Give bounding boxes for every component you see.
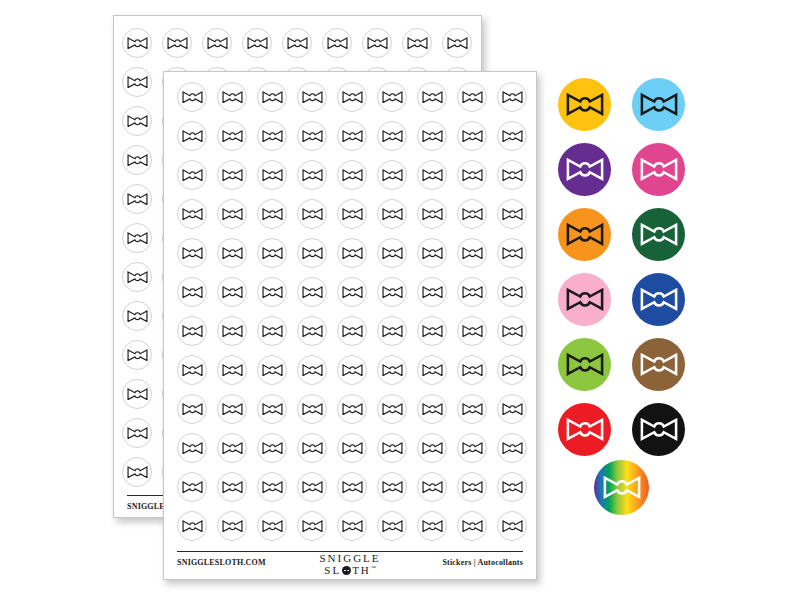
sticker-circle [377,199,407,229]
sticker-circle [497,121,527,151]
sticker-circle [457,511,487,541]
bow-tie-icon [566,353,604,376]
sticker-circle [377,238,407,268]
bow-tie-icon [302,208,323,221]
sticker-circle [122,301,152,331]
sticker-circle [377,160,407,190]
bow-tie-icon [462,169,483,182]
sticker-circle [122,106,152,136]
bow-tie-icon [502,130,523,143]
bow-tie-icon [640,158,678,181]
bow-tie-icon [127,115,148,128]
sticker-circle [217,238,247,268]
bow-tie-icon [422,169,443,182]
bow-tie-icon [462,130,483,143]
sticker-circle [297,82,327,112]
sticker-circle [362,28,392,58]
sticker-circle [497,394,527,424]
bow-tie-icon [222,442,243,455]
bow-tie-icon [640,353,678,376]
bow-tie-icon [342,442,363,455]
bow-tie-icon [462,91,483,104]
sticker-circle [457,121,487,151]
sticker-circle [217,394,247,424]
bow-tie-icon [422,520,443,533]
sticker-circle [217,511,247,541]
sticker-circle [417,472,447,502]
sticker-circle [322,28,352,58]
sticker-circle [217,433,247,463]
sloth-face-icon [342,566,351,575]
bow-tie-icon [382,520,403,533]
bow-tie-icon [422,91,443,104]
bow-tie-icon [462,247,483,260]
sticker-circle [122,67,152,97]
sticker-circle [257,316,287,346]
bow-tie-icon [327,37,348,50]
sticker-circle [257,238,287,268]
sticker-circle [177,433,207,463]
bow-tie-icon [382,325,403,338]
sticker-circle [402,28,432,58]
bow-tie-icon [302,442,323,455]
sticker-grid-front [177,82,527,541]
sticker-circle [122,184,152,214]
sticker-circle [257,277,287,307]
sticker-circle [122,418,152,448]
sticker-circle [122,457,152,487]
bow-tie-icon [342,364,363,377]
sticker-circle [177,82,207,112]
sticker-circle [377,394,407,424]
sticker-circle [177,238,207,268]
sticker-circle [417,433,447,463]
sticker-circle [377,316,407,346]
bow-tie-icon [342,403,363,416]
product-image: SNIGGLESLOTH.COM SNIGGLE SLTH™ Stickers … [0,0,800,600]
sticker-circle [177,355,207,385]
bow-tie-icon [640,223,678,246]
sticker-circle [257,121,287,151]
sticker-sheet-front: SNIGGLESLOTH.COM SNIGGLE SLTH™ Stickers … [163,71,537,580]
sticker-circle [417,394,447,424]
bow-tie-icon [382,169,403,182]
sticker-circle [217,121,247,151]
sticker-circle [377,121,407,151]
bow-tie-icon [222,247,243,260]
sticker-circle [282,28,312,58]
bow-tie-icon [182,286,203,299]
bow-tie-icon [342,520,363,533]
sticker-circle [337,82,367,112]
bow-tie-icon [262,169,283,182]
color-swatch-grid [558,78,685,456]
bow-tie-icon [302,325,323,338]
bow-tie-icon [262,286,283,299]
bow-tie-icon [342,130,363,143]
color-swatch-yellow [558,78,611,131]
sticker-circle [122,340,152,370]
bow-tie-icon [342,325,363,338]
bow-tie-icon [462,481,483,494]
bow-tie-icon [502,481,523,494]
sticker-circle [497,160,527,190]
bow-tie-icon [502,403,523,416]
sticker-circle [497,511,527,541]
bow-tie-icon [182,481,203,494]
bow-tie-icon [462,286,483,299]
bow-tie-icon [502,286,523,299]
sticker-circle [217,277,247,307]
color-swatch-royal-blue [632,273,685,326]
bow-tie-icon [302,481,323,494]
sticker-circle [177,316,207,346]
sticker-circle [297,160,327,190]
bow-tie-icon [182,208,203,221]
bow-tie-icon [462,403,483,416]
bow-tie-icon [640,418,678,441]
bow-tie-icon [262,247,283,260]
bow-tie-icon [447,37,468,50]
bow-tie-icon [367,37,388,50]
bow-tie-icon [382,403,403,416]
bow-tie-icon [262,364,283,377]
bow-tie-icon [462,325,483,338]
bow-tie-icon [502,325,523,338]
bow-tie-icon [302,286,323,299]
bow-tie-icon [422,481,443,494]
sticker-circle [177,511,207,541]
bow-tie-icon [222,91,243,104]
bow-tie-icon [127,466,148,479]
sticker-circle [217,355,247,385]
sticker-circle [497,238,527,268]
bow-tie-icon [222,520,243,533]
bow-tie-icon [182,169,203,182]
bow-tie-icon [422,130,443,143]
bow-tie-icon [462,208,483,221]
bow-tie-icon [222,130,243,143]
bow-tie-icon [566,158,604,181]
sticker-circle [457,472,487,502]
bow-tie-icon [422,364,443,377]
bow-tie-icon [302,169,323,182]
bow-tie-icon [127,37,148,50]
color-swatch-orange [558,208,611,261]
bow-tie-icon [127,388,148,401]
bow-tie-icon [566,418,604,441]
sticker-circle [497,433,527,463]
bow-tie-icon [182,130,203,143]
sticker-circle [457,82,487,112]
bow-tie-icon [127,427,148,440]
color-swatch-rainbow [594,460,649,515]
bow-tie-icon [422,247,443,260]
sticker-circle [297,316,327,346]
bow-tie-icon [422,325,443,338]
sticker-circle [457,160,487,190]
bow-tie-icon [207,37,228,50]
sticker-circle [257,511,287,541]
sticker-circle [297,238,327,268]
bow-tie-icon [462,442,483,455]
bow-tie-icon [182,403,203,416]
color-swatch-black [632,403,685,456]
sticker-circle [122,145,152,175]
sticker-circle [337,277,367,307]
sticker-circle [217,82,247,112]
bow-tie-icon [127,154,148,167]
sticker-circle [337,433,367,463]
sticker-circle [377,355,407,385]
bow-tie-icon [127,76,148,89]
bow-tie-icon [222,325,243,338]
sticker-circle [257,199,287,229]
bow-tie-icon [302,364,323,377]
bow-tie-icon [382,442,403,455]
bow-tie-icon [262,403,283,416]
sticker-circle [257,394,287,424]
sticker-circle [162,28,192,58]
bow-tie-icon [422,208,443,221]
sticker-circle [442,28,472,58]
sticker-circle [337,199,367,229]
bow-tie-icon [222,403,243,416]
sticker-circle [297,433,327,463]
sticker-circle [457,199,487,229]
sticker-circle [297,277,327,307]
bow-tie-icon [502,91,523,104]
bow-tie-icon [302,247,323,260]
bow-tie-icon [382,247,403,260]
bow-tie-icon [222,286,243,299]
color-swatch-red [558,403,611,456]
bow-tie-icon [262,130,283,143]
sticker-circle [122,262,152,292]
sticker-circle [497,472,527,502]
bow-tie-icon [302,520,323,533]
sticker-circle [177,472,207,502]
sticker-circle [217,199,247,229]
bow-tie-icon [127,193,148,206]
bow-tie-icon [127,349,148,362]
sticker-circle [242,28,272,58]
sticker-circle [337,238,367,268]
bow-tie-icon [502,442,523,455]
product-type-text: Stickers | Autocollants [442,558,523,567]
bow-tie-icon [342,169,363,182]
bow-tie-icon [502,520,523,533]
bow-tie-icon [502,364,523,377]
bow-tie-icon [182,364,203,377]
sticker-circle [177,277,207,307]
trademark-symbol: ™ [371,565,376,570]
bow-tie-icon [640,93,678,116]
color-swatch-purple [558,143,611,196]
sticker-circle [457,238,487,268]
bow-tie-icon [566,93,604,116]
sticker-circle [337,472,367,502]
bow-tie-icon [262,91,283,104]
bow-tie-icon [182,325,203,338]
bow-tie-icon [127,310,148,323]
sticker-circle [122,223,152,253]
sticker-circle [417,511,447,541]
bow-tie-icon [182,520,203,533]
bow-tie-icon [287,37,308,50]
sticker-circle [417,355,447,385]
bow-tie-icon [422,403,443,416]
color-swatch-light-pink [558,273,611,326]
sticker-circle [497,316,527,346]
bow-tie-icon [502,247,523,260]
bow-tie-icon [382,364,403,377]
bow-tie-icon [182,442,203,455]
sticker-circle [217,316,247,346]
sticker-circle [497,355,527,385]
sticker-circle [457,316,487,346]
bow-tie-icon [222,364,243,377]
sticker-circle [377,511,407,541]
bow-tie-icon [182,91,203,104]
sticker-circle [257,355,287,385]
sticker-circle [337,316,367,346]
bow-tie-icon [462,520,483,533]
bow-tie-icon [302,130,323,143]
sticker-circle [297,121,327,151]
bow-tie-icon [302,403,323,416]
sticker-circle [497,277,527,307]
bow-tie-icon [262,481,283,494]
color-swatch-sky-blue [632,78,685,131]
sticker-circle [337,121,367,151]
bow-tie-icon [382,286,403,299]
sticker-circle [337,394,367,424]
bow-tie-icon [262,442,283,455]
bow-tie-icon [247,37,268,50]
bow-tie-icon [127,271,148,284]
sticker-circle [417,238,447,268]
bow-tie-icon [407,37,428,50]
sticker-circle [257,82,287,112]
bow-tie-icon [127,232,148,245]
sticker-circle [177,160,207,190]
sticker-circle [297,511,327,541]
bow-tie-icon [167,37,188,50]
sticker-circle [297,199,327,229]
bow-tie-icon [566,223,604,246]
sticker-circle [417,82,447,112]
sticker-circle [297,472,327,502]
sticker-circle [417,277,447,307]
sticker-circle [177,199,207,229]
sticker-circle [457,394,487,424]
sticker-circle [177,394,207,424]
sticker-circle [122,28,152,58]
sticker-circle [417,121,447,151]
sticker-circle [217,472,247,502]
bow-tie-icon [382,130,403,143]
bow-tie-icon [262,520,283,533]
sticker-circle [297,355,327,385]
sticker-circle [417,199,447,229]
bow-tie-icon [222,481,243,494]
bow-tie-icon [603,476,641,499]
sticker-circle [497,82,527,112]
sticker-circle [497,199,527,229]
bow-tie-icon [342,286,363,299]
rainbow-swatch-slot [594,460,649,515]
bow-tie-icon [182,247,203,260]
sticker-circle [417,316,447,346]
sticker-circle [257,472,287,502]
bow-tie-icon [262,325,283,338]
bow-tie-icon [262,208,283,221]
sticker-circle [202,28,232,58]
sticker-circle [257,433,287,463]
sticker-circle [457,355,487,385]
color-swatch-lime-green [558,338,611,391]
bow-tie-icon [566,288,604,311]
sticker-circle [217,160,247,190]
sticker-circle [417,160,447,190]
bow-tie-icon [302,91,323,104]
bow-tie-icon [462,364,483,377]
bow-tie-icon [342,247,363,260]
sticker-circle [377,433,407,463]
color-swatch-brown [632,338,685,391]
color-swatch-magenta [632,143,685,196]
sticker-circle [177,121,207,151]
bow-tie-icon [422,442,443,455]
sticker-circle [337,355,367,385]
sticker-circle [337,511,367,541]
sticker-circle [257,160,287,190]
bow-tie-icon [222,169,243,182]
bow-tie-icon [382,91,403,104]
bow-tie-icon [342,91,363,104]
sticker-circle [122,379,152,409]
sticker-circle [377,82,407,112]
sticker-circle [377,472,407,502]
sticker-circle [457,277,487,307]
bow-tie-icon [222,208,243,221]
color-swatch-forest-green [632,208,685,261]
bow-tie-icon [502,169,523,182]
sticker-circle [337,160,367,190]
bow-tie-icon [422,286,443,299]
sticker-circle [457,433,487,463]
sticker-circle [297,394,327,424]
bow-tie-icon [640,288,678,311]
bow-tie-icon [502,208,523,221]
bow-tie-icon [382,208,403,221]
bow-tie-icon [382,481,403,494]
sticker-circle [377,277,407,307]
bow-tie-icon [342,481,363,494]
bow-tie-icon [342,208,363,221]
